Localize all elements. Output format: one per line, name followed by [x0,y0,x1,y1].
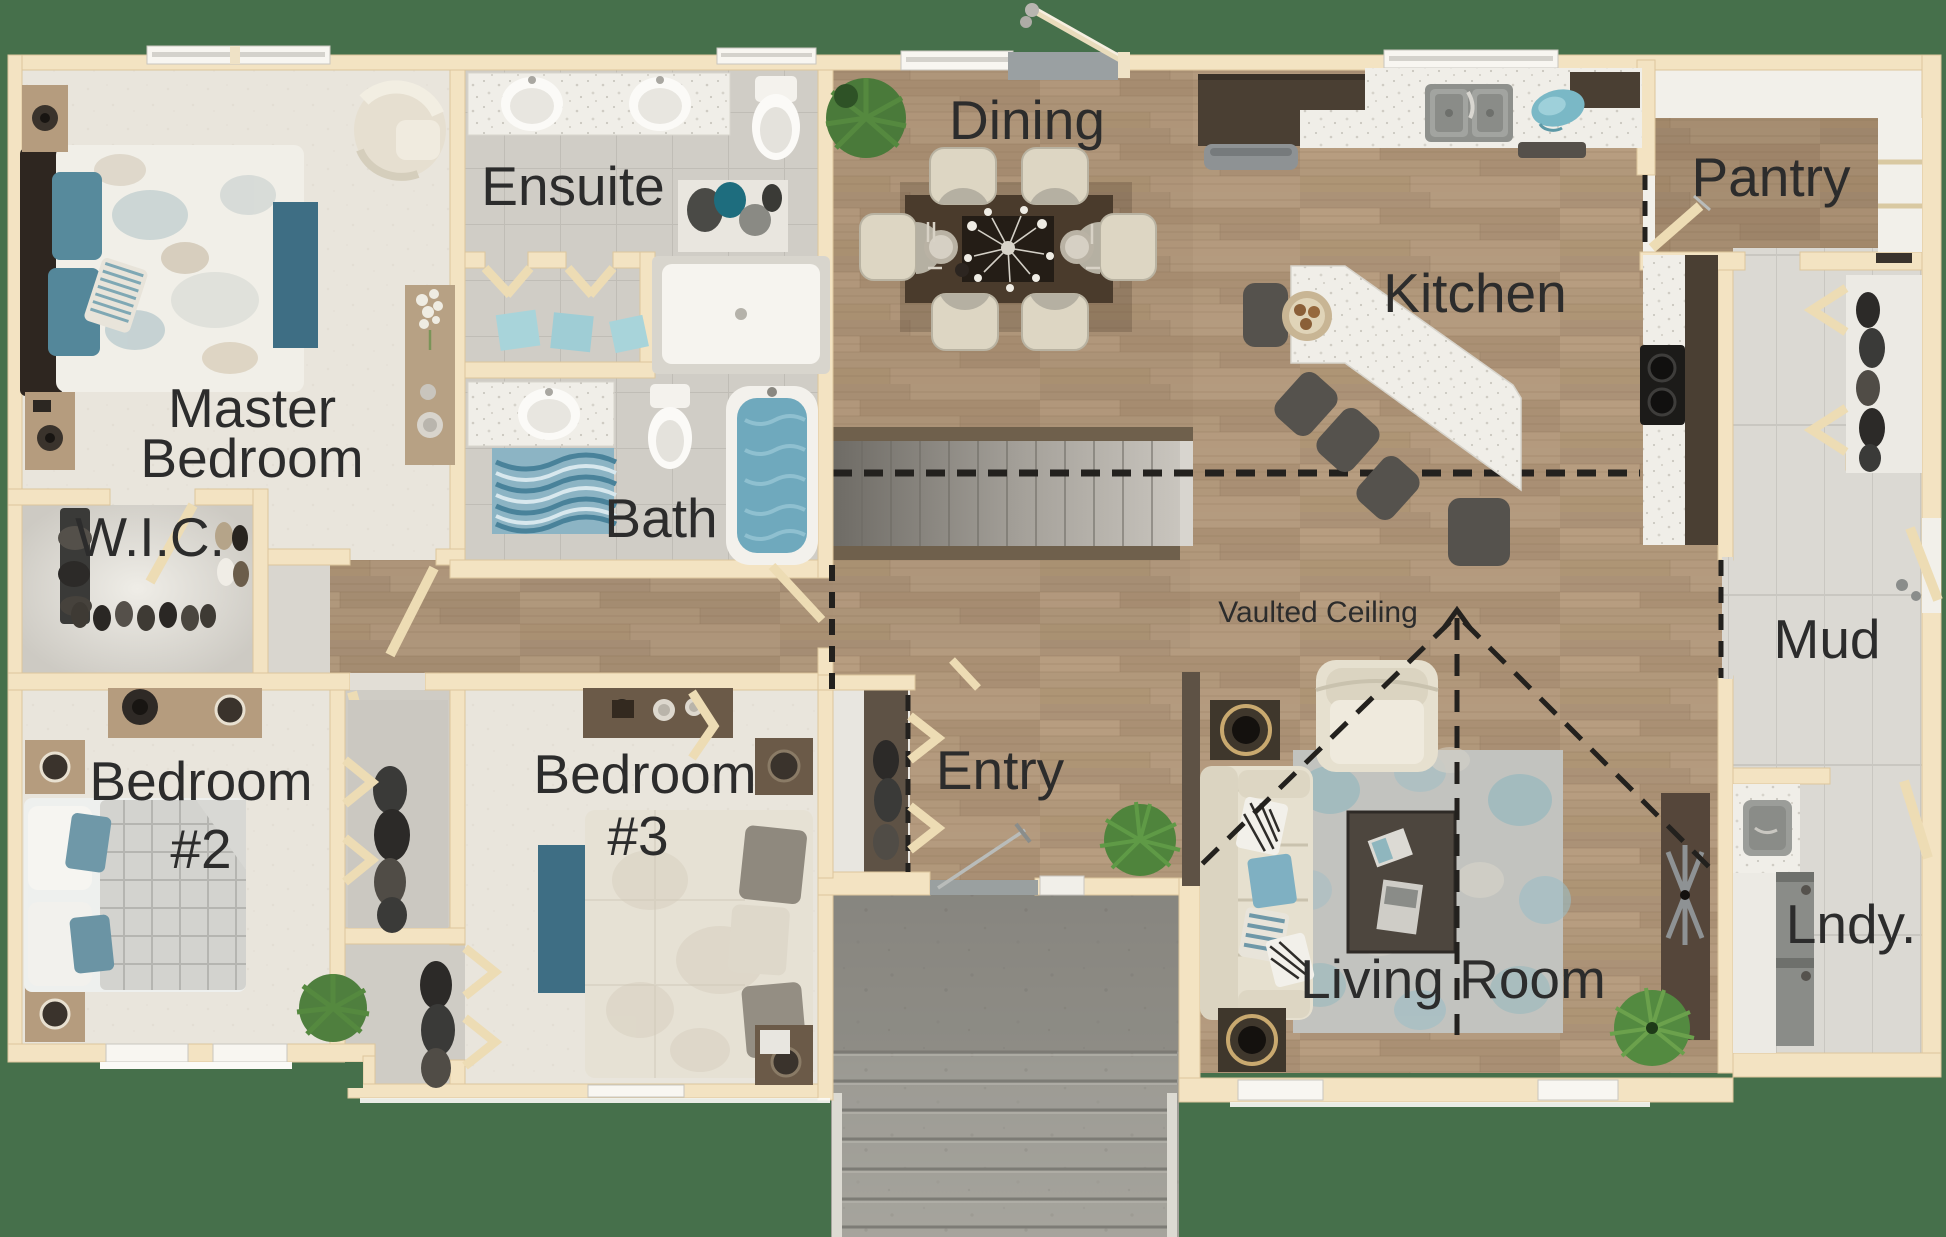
svg-text:Bedroom: Bedroom [89,750,312,812]
svg-text:Mud: Mud [1774,608,1881,670]
svg-text:Bedroom: Bedroom [140,427,363,489]
svg-text:Bedroom: Bedroom [533,743,756,805]
svg-text:Dining: Dining [949,89,1105,151]
svg-text:Ensuite: Ensuite [481,155,664,217]
svg-text:#2: #2 [170,818,231,880]
svg-text:W.I.C.: W.I.C. [75,506,225,568]
svg-text:Bath: Bath [604,487,717,549]
svg-text:Kitchen: Kitchen [1383,262,1566,324]
svg-text:Lndy.: Lndy. [1786,893,1916,955]
svg-text:Entry: Entry [936,739,1065,801]
svg-text:Pantry: Pantry [1692,146,1851,208]
svg-text:Vaulted Ceiling: Vaulted Ceiling [1218,596,1418,629]
svg-text:Living Room: Living Room [1300,948,1606,1010]
svg-text:#3: #3 [607,805,668,867]
